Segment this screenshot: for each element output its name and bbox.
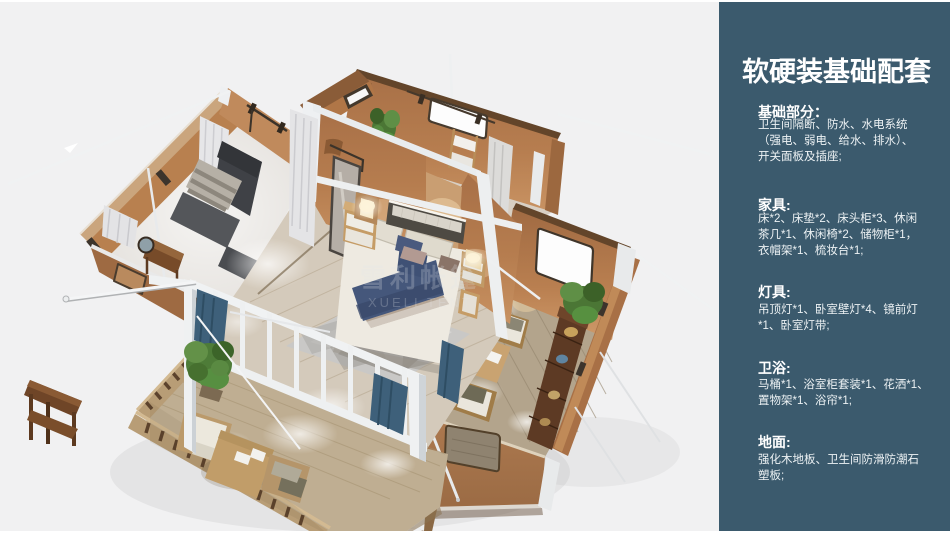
svg-text:XUELI TENT: XUELI TENT	[368, 295, 473, 310]
svg-text:雪利帐篷: 雪利帐篷	[360, 263, 480, 293]
